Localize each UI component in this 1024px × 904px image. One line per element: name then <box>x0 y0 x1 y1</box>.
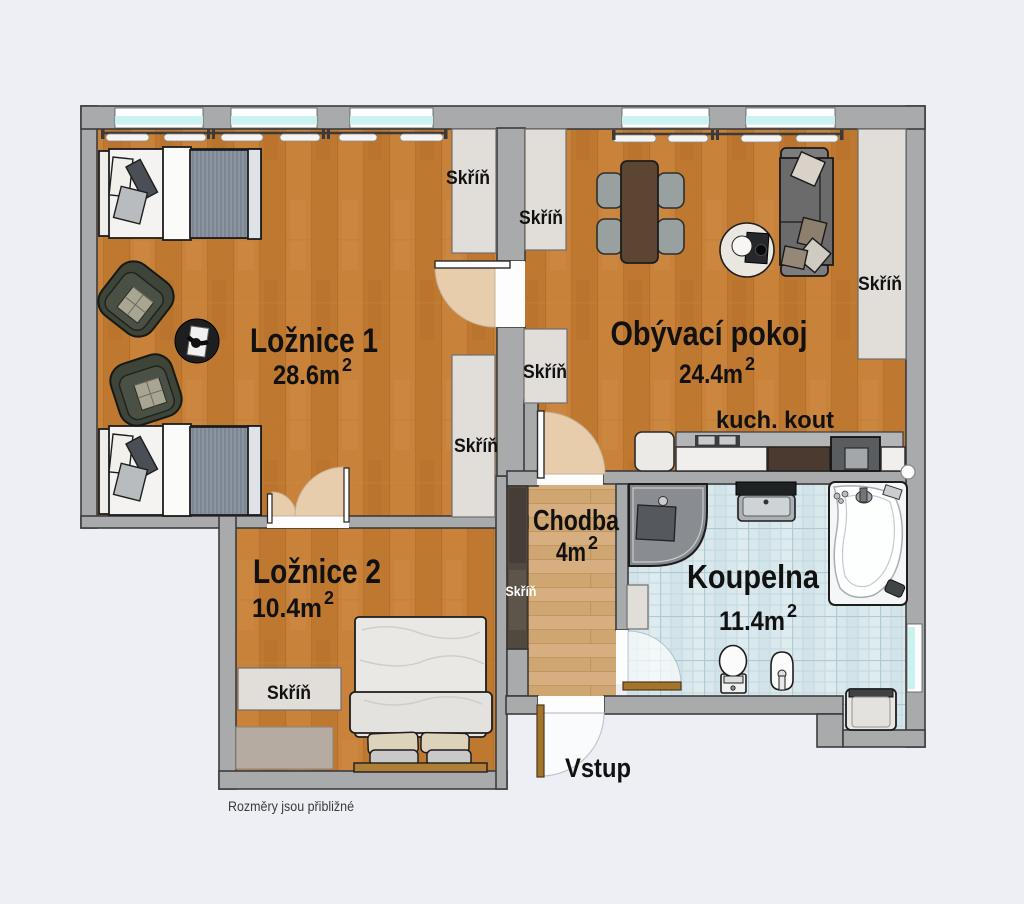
svg-text:Skříň: Skříň <box>267 683 311 704</box>
svg-text:4m: 4m <box>556 537 586 567</box>
svg-text:kuch. kout: kuch. kout <box>716 407 834 434</box>
svg-text:Skříň: Skříň <box>523 362 567 383</box>
svg-text:Chodba: Chodba <box>533 505 620 537</box>
svg-text:28.6m: 28.6m <box>273 360 340 390</box>
svg-text:Vstup: Vstup <box>565 753 631 783</box>
svg-text:2: 2 <box>324 588 334 608</box>
svg-text:2: 2 <box>745 354 755 374</box>
svg-text:Skříň: Skříň <box>446 168 490 189</box>
svg-text:Skříň: Skříň <box>506 583 537 599</box>
svg-text:Koupelna: Koupelna <box>687 558 820 595</box>
svg-text:Rozměry jsou přibližné: Rozměry jsou přibližné <box>228 798 354 814</box>
svg-text:Skříň: Skříň <box>858 274 902 295</box>
svg-text:Ložnice 1: Ložnice 1 <box>250 322 378 360</box>
svg-text:2: 2 <box>787 601 797 621</box>
svg-text:Skříň: Skříň <box>519 208 563 229</box>
svg-text:2: 2 <box>588 533 598 553</box>
svg-text:11.4m: 11.4m <box>719 606 785 636</box>
svg-text:Skříň: Skříň <box>454 436 498 457</box>
svg-text:2: 2 <box>342 355 352 375</box>
svg-text:10.4m: 10.4m <box>252 593 322 623</box>
svg-text:24.4m: 24.4m <box>679 359 743 389</box>
svg-text:Ložnice 2: Ložnice 2 <box>253 553 381 591</box>
svg-text:Obývací pokoj: Obývací pokoj <box>611 315 808 353</box>
